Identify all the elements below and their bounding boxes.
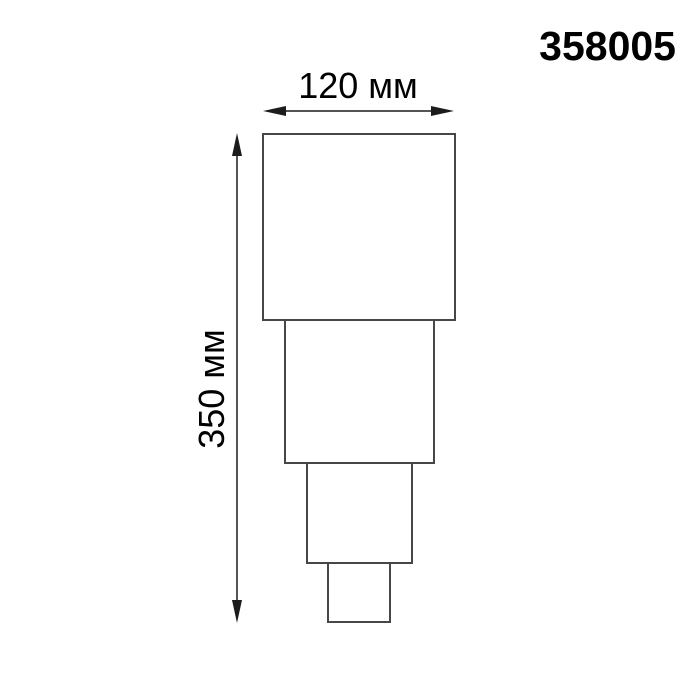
fixture-segment-upper-middle xyxy=(285,320,434,463)
width-dimension-arrow xyxy=(263,106,454,116)
fixture-segment-top xyxy=(263,134,455,320)
arrowhead-left-icon xyxy=(263,106,286,116)
product-code: 358005 xyxy=(539,23,676,70)
fixture-segment-lower-middle xyxy=(307,463,412,563)
arrowhead-down-icon xyxy=(232,600,242,623)
height-dimension-label: 350 мм xyxy=(191,329,233,449)
arrowhead-right-icon xyxy=(431,106,454,116)
dimension-diagram-page: 358005 120 мм 350 мм xyxy=(0,0,700,700)
arrowhead-up-icon xyxy=(232,133,242,156)
fixture-segment-base xyxy=(328,563,390,622)
width-dimension-label: 120 мм xyxy=(258,65,458,107)
fixture-outline xyxy=(263,134,455,622)
height-dimension-arrow xyxy=(232,133,242,623)
